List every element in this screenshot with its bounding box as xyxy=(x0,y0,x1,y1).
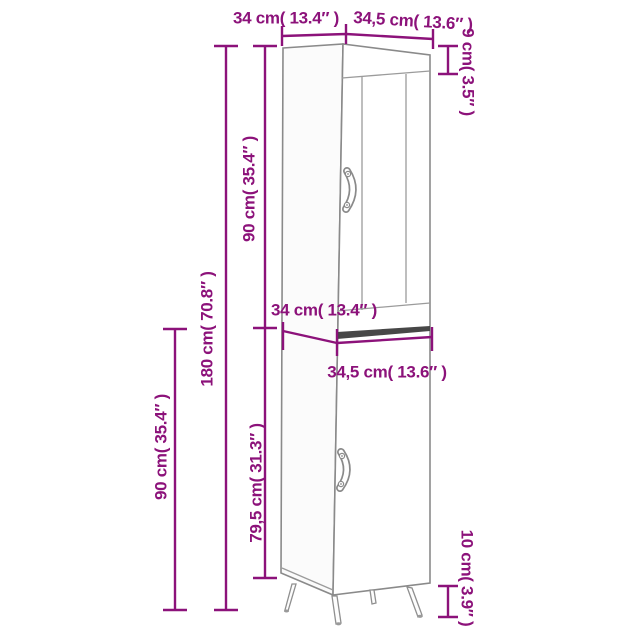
lower-handle-screw-dot xyxy=(341,455,343,457)
dim-label-leg-height: 10 cm( 3.9″ ) xyxy=(459,530,476,627)
cabinet-front-panel xyxy=(333,44,430,595)
dim-label-lower-section-height: 90 cm( 35.4″ ) xyxy=(153,394,170,500)
dim-label-top-section-height: 9 cm( 3.5″ ) xyxy=(460,28,477,116)
dim-label-top-depth: 34 cm( 13.4″ ) xyxy=(233,10,339,27)
upper-handle-screw-dot xyxy=(346,204,348,206)
dim-line-top xyxy=(282,34,433,39)
leg-foot-cap xyxy=(284,610,289,613)
dim-label-middle-depth: 34 cm( 13.4″ ) xyxy=(271,302,377,319)
leg-foot-cap xyxy=(417,615,423,618)
dim-label-lower-door-height: 79,5 cm( 31.3″ ) xyxy=(248,423,265,543)
leg-foot-cap xyxy=(336,622,342,625)
cabinet-illustration xyxy=(0,0,640,640)
upper-handle-screw-dot xyxy=(347,173,349,175)
cabinet-body xyxy=(281,44,430,595)
leg-back xyxy=(370,590,376,604)
dim-label-middle-width: 34,5 cm( 13.6″ ) xyxy=(327,364,447,381)
leg-front-left xyxy=(285,584,296,611)
dim-label-total-height: 180 cm( 70.8″ ) xyxy=(199,271,216,386)
leg-front-center xyxy=(332,596,341,624)
product-dimension-diagram: 34 cm( 13.4″ ) 34,5 cm( 13.6″ ) 9 cm( 3.… xyxy=(0,0,640,640)
leg-front-right xyxy=(407,587,422,617)
lower-handle-screw-dot xyxy=(340,483,342,485)
dim-label-upper-section-height: 90 cm( 35.4″ ) xyxy=(241,136,258,242)
